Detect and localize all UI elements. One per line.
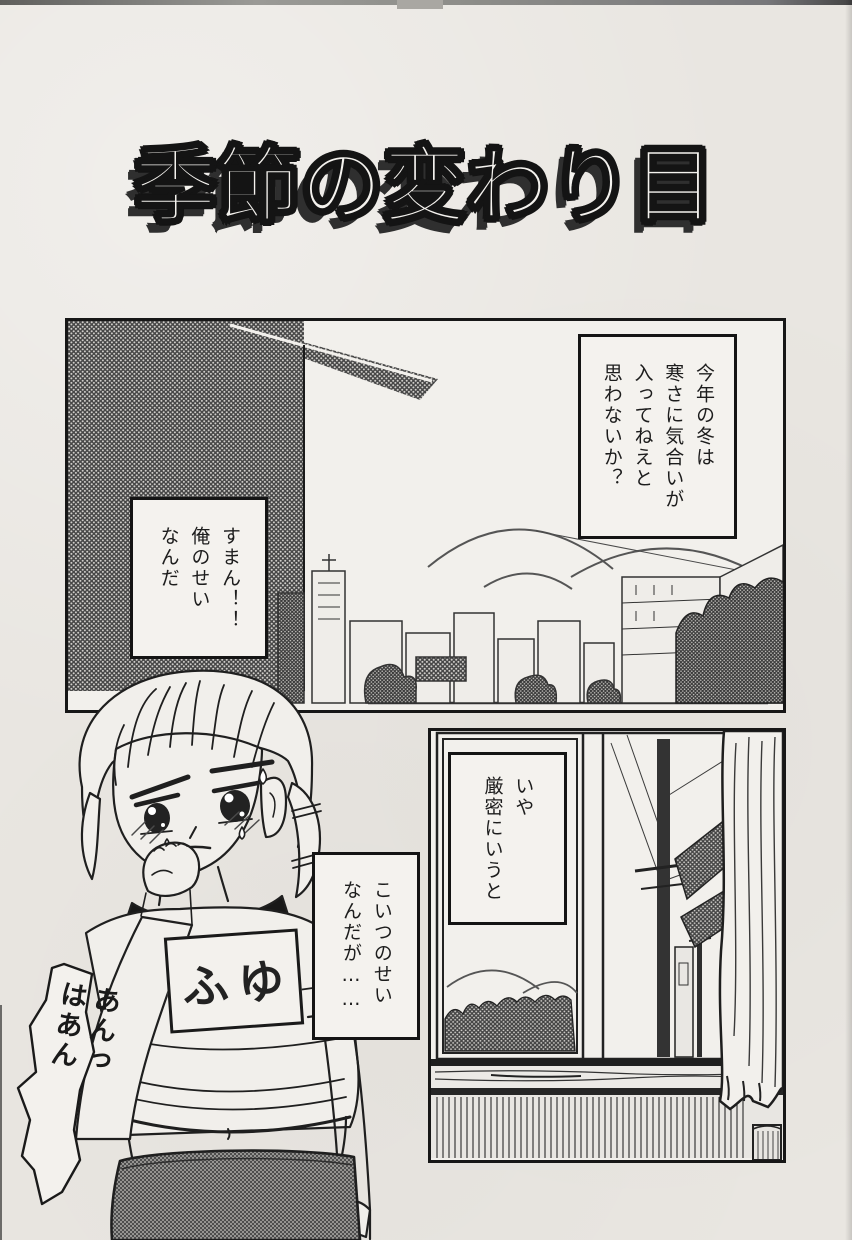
curtain [720,731,783,1109]
ear [261,778,286,837]
navel [228,1129,230,1139]
sfx-text: あんっ はあん [42,978,123,1077]
left-pane-hills [445,970,577,1051]
speech-text-blame: こいつのせい なんだが…… [335,880,397,1012]
page-title: 季節の変わり目 [125,142,725,232]
bottom-right-roll [753,1125,781,1160]
speech-bubble-strictly: いや 厳密にいうと [448,752,567,925]
scan-edge-right [845,0,852,1240]
shirt-name-text: ふゆ [180,944,296,1018]
speech-bubble-winter: 今年の冬は 寒さに気合いが 入ってねえと 思わないか？ [578,334,737,539]
manga-page: 季節の変わり目 [0,0,852,1240]
speech-bubble-sorry: すまん！！ 俺のせい なんだ [130,497,268,659]
scan-artifact-tab [397,0,443,9]
scan-edge-left [0,1005,2,1240]
speech-text-sorry: すまん！！ 俺のせい なんだ [153,526,245,631]
speech-text-winter: 今年の冬は 寒さに気合いが 入ってねえと 思わないか？ [596,363,719,510]
speech-text-strictly: いや 厳密にいうと [477,776,539,902]
sfx-moan-bubble: あんっ はあん [14,960,120,1212]
shirt-name-tag: ふゆ [164,928,304,1033]
telephone-pole [657,739,670,1057]
panel-establishing-shot: 今年の冬は 寒さに気合いが 入ってねえと 思わないか？ すまん！！ 俺のせい な… [65,318,786,713]
panel-window-view: いや 厳密にいうと [428,728,786,1163]
speech-bubble-blame: こいつのせい なんだが…… [312,852,420,1040]
